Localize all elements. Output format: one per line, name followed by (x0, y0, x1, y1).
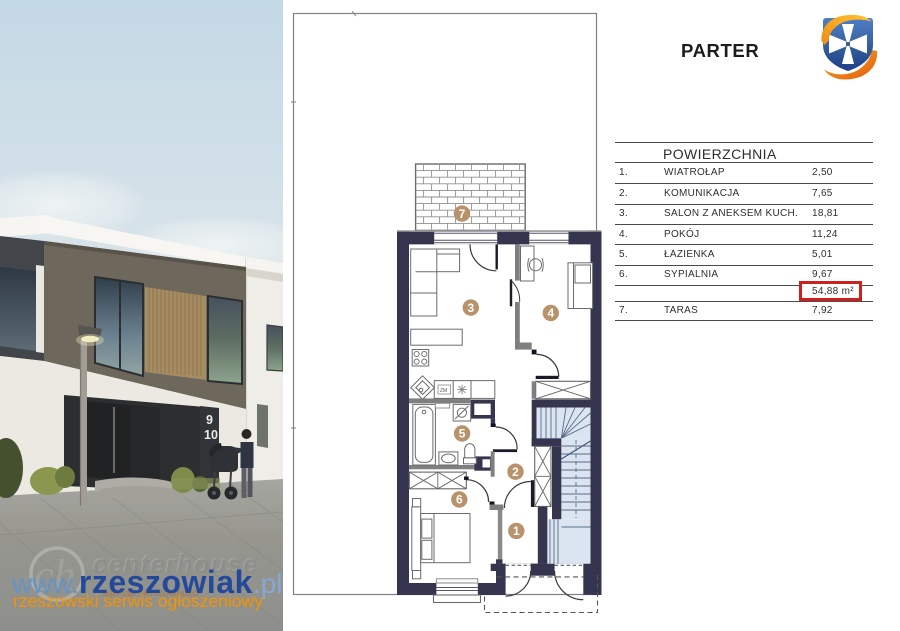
svg-text:ZM: ZM (440, 388, 447, 394)
svg-text:9: 9 (206, 413, 213, 427)
svg-text:4: 4 (547, 306, 554, 320)
svg-text:3: 3 (467, 301, 474, 315)
svg-text:5: 5 (459, 427, 466, 441)
svg-text:7: 7 (459, 207, 466, 221)
svg-text:10: 10 (204, 428, 218, 442)
svg-text:1: 1 (513, 524, 520, 538)
svg-text:6: 6 (456, 493, 463, 507)
svg-text:2: 2 (512, 465, 519, 479)
